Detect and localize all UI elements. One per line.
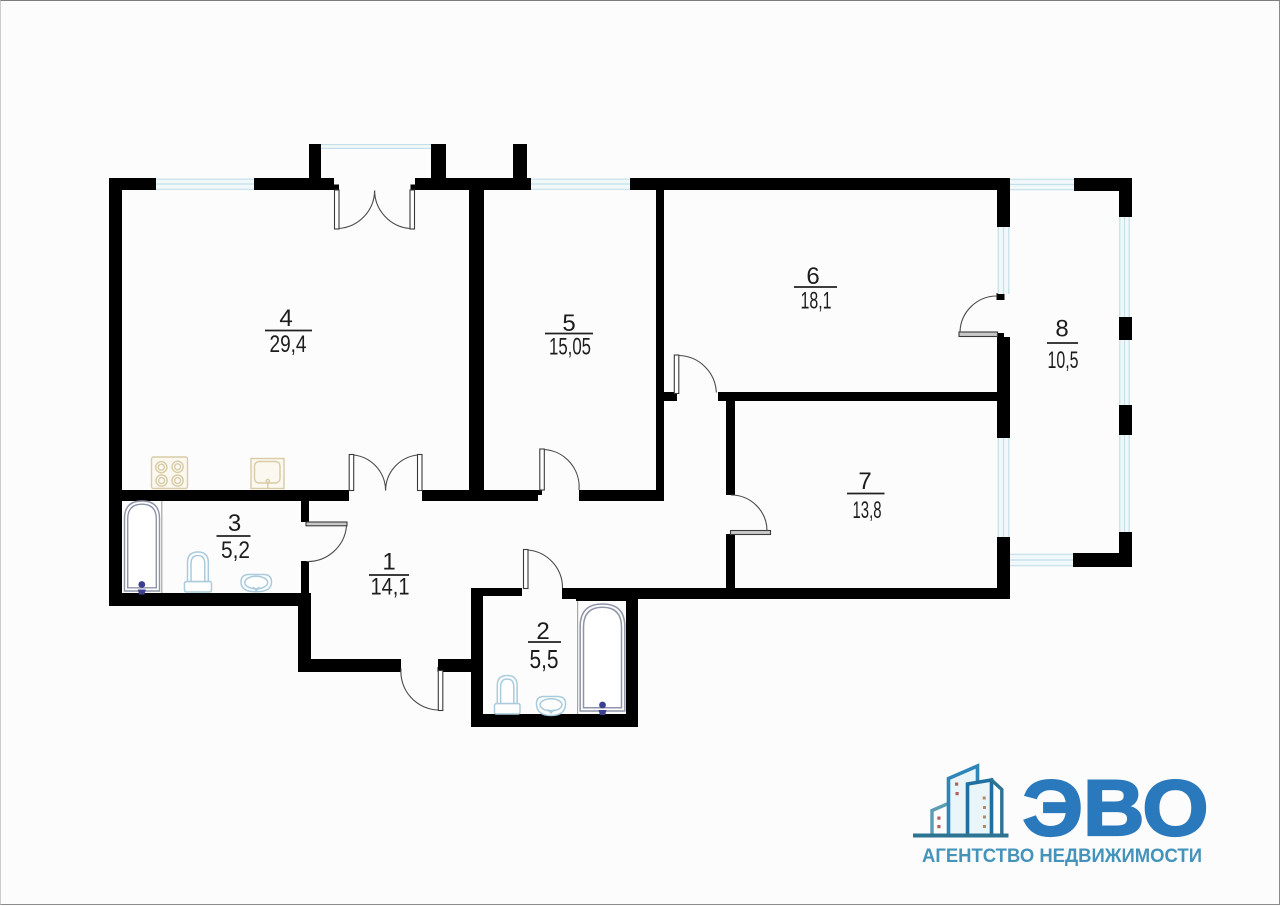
svg-text:1: 1	[382, 549, 395, 576]
svg-text:15,05: 15,05	[549, 334, 591, 361]
svg-text:4: 4	[279, 305, 292, 332]
svg-text:ЭВО: ЭВО	[1023, 763, 1209, 852]
svg-text:3: 3	[228, 510, 241, 537]
svg-text:5,5: 5,5	[530, 646, 559, 674]
svg-text:2: 2	[536, 618, 549, 645]
svg-text:8: 8	[1055, 316, 1068, 343]
svg-text:5,2: 5,2	[221, 537, 250, 564]
svg-text:7: 7	[858, 468, 871, 495]
svg-text:10,5: 10,5	[1048, 347, 1079, 374]
svg-text:14,1: 14,1	[371, 574, 410, 601]
svg-text:13,8: 13,8	[853, 497, 882, 524]
svg-text:6: 6	[806, 263, 819, 290]
svg-text:АГЕНТСТВО НЕДВИЖИМОСТИ: АГЕНТСТВО НЕДВИЖИМОСТИ	[922, 845, 1202, 867]
svg-text:29,4: 29,4	[270, 331, 307, 358]
svg-text:18,1: 18,1	[801, 288, 832, 315]
